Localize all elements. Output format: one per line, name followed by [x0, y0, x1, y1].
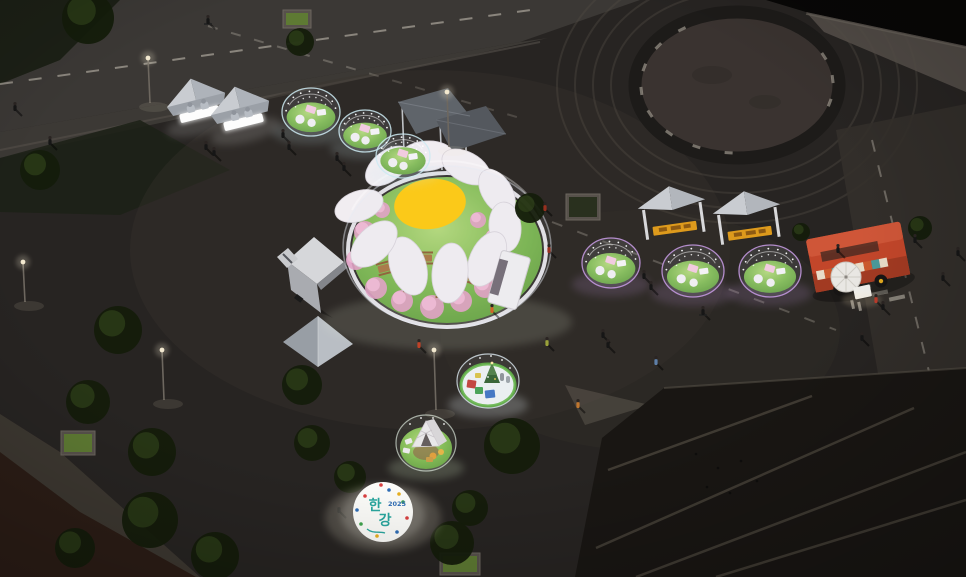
vignette: [0, 0, 966, 577]
night-event-plaza-render: 한 강 2025: [0, 0, 966, 577]
scene-svg: 한 강 2025: [0, 0, 966, 577]
